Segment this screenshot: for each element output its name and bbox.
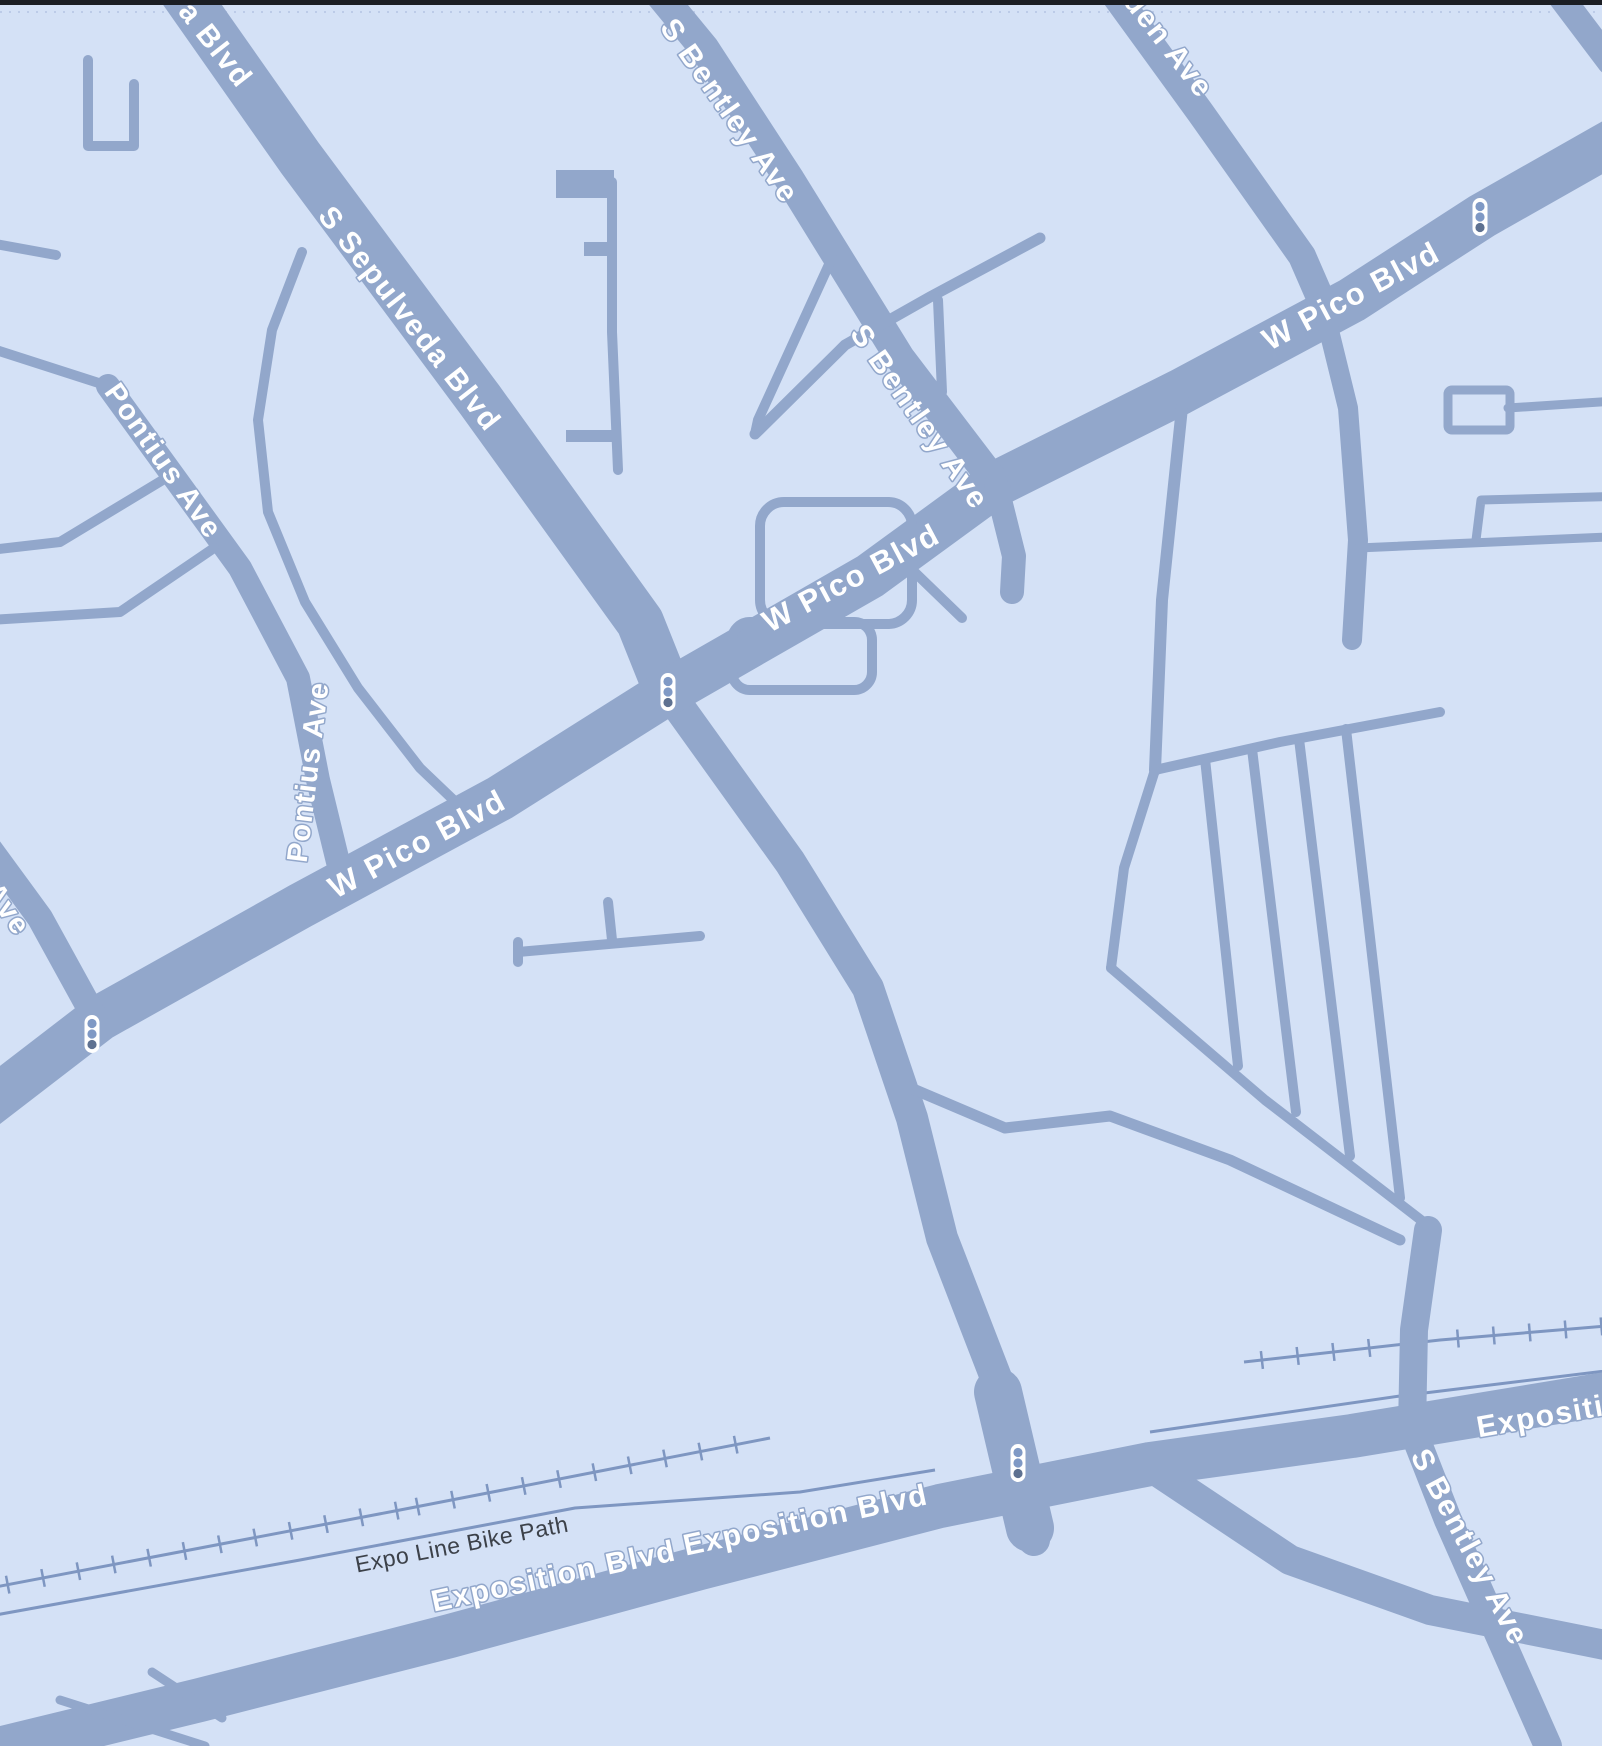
block-notch-3 [566, 430, 618, 442]
rail-tick [1457, 1330, 1459, 1348]
traffic-light-icon [1473, 198, 1488, 236]
rail-tick [1529, 1323, 1531, 1341]
map-viewport[interactable]: a BlvdS Sepulveda BlvdS Bentley AveS Ben… [0, 0, 1602, 1746]
traffic-light-icon [85, 1015, 100, 1053]
block-notch-1 [556, 170, 614, 198]
map-canvas[interactable]: a BlvdS Sepulveda BlvdS Bentley AveS Ben… [0, 0, 1602, 1746]
top-edge-bar [0, 0, 1602, 5]
traffic-light-icon [1011, 1444, 1026, 1482]
road-t-stub-up [608, 902, 612, 940]
rail-tick [1565, 1320, 1567, 1338]
traffic-light-icon [661, 673, 676, 711]
rail-tick [1493, 1327, 1495, 1345]
block-notch-2 [584, 242, 612, 256]
road-cross-stub [938, 300, 942, 392]
